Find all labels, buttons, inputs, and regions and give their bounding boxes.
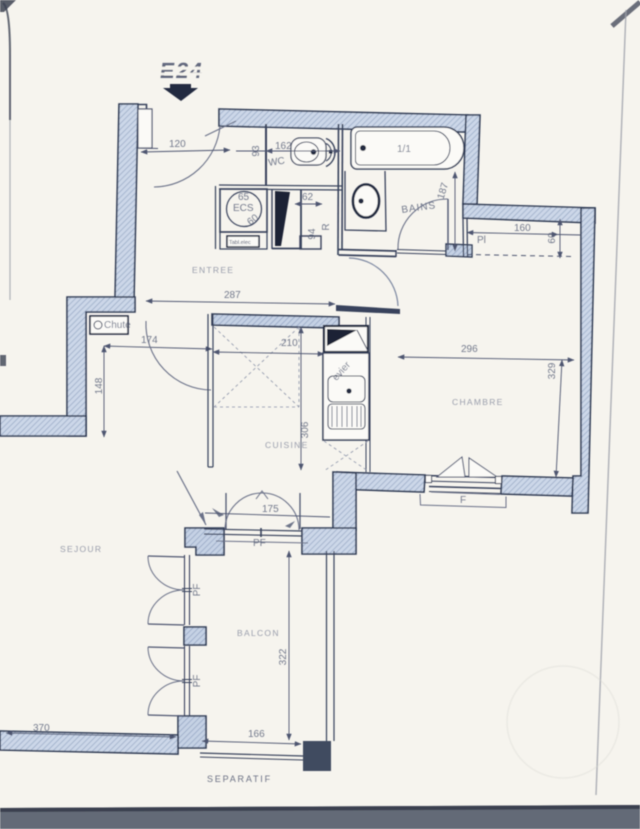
svg-text:CUISINE: CUISINE: [265, 440, 309, 450]
svg-text:174: 174: [141, 335, 158, 346]
svg-text:BALCON: BALCON: [237, 628, 280, 638]
svg-text:ENTREE: ENTREE: [192, 265, 234, 275]
svg-text:ECS: ECS: [233, 203, 254, 214]
svg-text:287: 287: [224, 290, 241, 301]
svg-text:162: 162: [275, 141, 292, 152]
svg-text:210: 210: [281, 338, 298, 349]
svg-text:148: 148: [94, 377, 105, 394]
svg-text:PF: PF: [253, 538, 266, 549]
svg-text:E24: E24: [158, 58, 205, 83]
svg-text:166: 166: [248, 729, 265, 740]
svg-text:175: 175: [262, 504, 279, 515]
svg-text:60: 60: [547, 232, 558, 244]
svg-text:296: 296: [461, 344, 478, 355]
svg-text:93: 93: [251, 145, 262, 157]
svg-text:322: 322: [278, 648, 289, 665]
svg-text:329: 329: [547, 362, 558, 379]
svg-text:Pl: Pl: [477, 235, 486, 246]
svg-text:Tabl.elec: Tabl.elec: [229, 240, 251, 246]
svg-text:94: 94: [307, 228, 318, 240]
svg-text:SEPARATIF: SEPARATIF: [207, 774, 272, 784]
svg-text:306: 306: [300, 421, 311, 438]
svg-text:62: 62: [302, 192, 314, 203]
svg-text:120: 120: [169, 139, 186, 150]
svg-text:1/1: 1/1: [397, 144, 411, 155]
svg-text:F: F: [460, 495, 466, 506]
svg-text:65: 65: [238, 192, 250, 203]
svg-text:CHAMBRE: CHAMBRE: [452, 397, 504, 407]
svg-text:Chute: Chute: [104, 320, 131, 331]
svg-text:160: 160: [514, 223, 531, 234]
svg-text:R: R: [321, 223, 332, 230]
svg-text:PF: PF: [192, 584, 203, 597]
svg-text:PF: PF: [192, 675, 203, 688]
svg-text:370: 370: [33, 723, 50, 734]
svg-text:SEJOUR: SEJOUR: [60, 544, 102, 554]
